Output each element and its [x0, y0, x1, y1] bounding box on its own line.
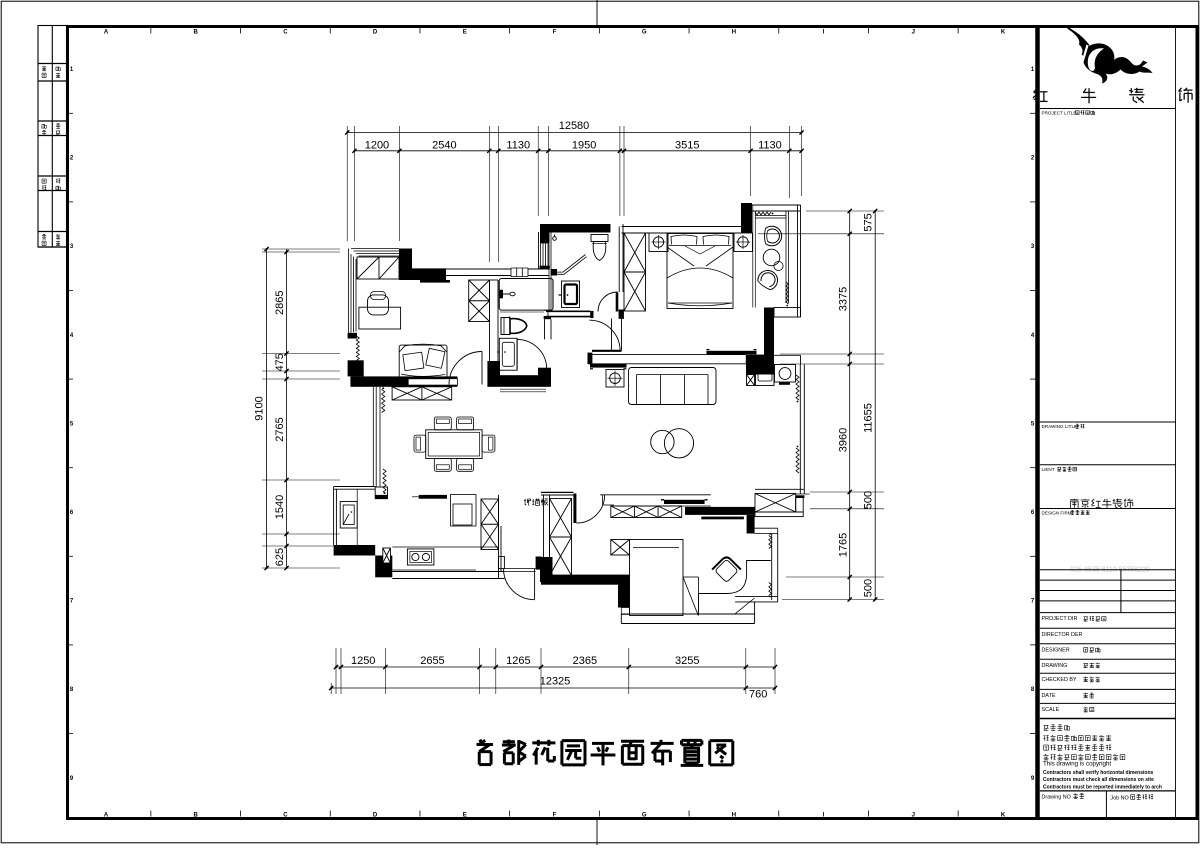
- svg-text:SCALE: SCALE: [1042, 707, 1060, 713]
- svg-text:1265: 1265: [506, 655, 530, 667]
- svg-text:1950: 1950: [572, 140, 596, 152]
- svg-text:Job NO: Job NO: [1110, 795, 1128, 801]
- svg-text:3515: 3515: [675, 140, 699, 152]
- svg-text:1130: 1130: [758, 140, 782, 152]
- svg-text:B: B: [194, 813, 199, 819]
- svg-text:1540: 1540: [274, 495, 286, 519]
- svg-text:2540: 2540: [432, 140, 456, 152]
- svg-text:K: K: [1001, 30, 1006, 36]
- svg-text:A: A: [104, 813, 109, 819]
- svg-text:DIRECTOR DER: DIRECTOR DER: [1042, 632, 1083, 638]
- svg-text:G: G: [642, 30, 647, 36]
- svg-text:H: H: [732, 813, 736, 819]
- svg-text:DESIGN FIRM: DESIGN FIRM: [1042, 511, 1072, 516]
- svg-text:2365: 2365: [573, 655, 597, 667]
- svg-text:K: K: [1001, 813, 1006, 819]
- svg-text:3960: 3960: [838, 428, 850, 452]
- svg-text:760: 760: [749, 689, 767, 701]
- svg-text:2865: 2865: [274, 291, 286, 315]
- svg-text:This drawing is copyright: This drawing is copyright: [1043, 760, 1111, 767]
- svg-text:1765: 1765: [838, 533, 850, 557]
- svg-text:PROJECT LITLE: PROJECT LITLE: [1042, 110, 1077, 115]
- svg-text:500: 500: [863, 491, 875, 509]
- svg-text:1130: 1130: [506, 140, 530, 152]
- svg-text:Contractors must be reported i: Contractors must be reported immediately…: [1043, 784, 1162, 790]
- svg-text:500: 500: [863, 579, 875, 597]
- svg-text:LIENT: LIENT: [1042, 467, 1055, 472]
- svg-text:2765: 2765: [274, 417, 286, 441]
- svg-text:CHECKED BY: CHECKED BY: [1042, 677, 1077, 683]
- svg-text:DATE: DATE: [1042, 693, 1056, 699]
- svg-text:C: C: [283, 30, 288, 36]
- svg-text:2655: 2655: [420, 655, 444, 667]
- svg-text:Contractors shall verify horiz: Contractors shall verify horizontal dime…: [1043, 770, 1154, 776]
- svg-text:3255: 3255: [675, 655, 699, 667]
- svg-text:D: D: [373, 30, 378, 36]
- svg-text:9100: 9100: [254, 396, 266, 420]
- svg-text:B: B: [194, 30, 199, 36]
- svg-text:11655: 11655: [863, 403, 875, 433]
- svg-text:1250: 1250: [351, 655, 375, 667]
- svg-text:G: G: [642, 813, 647, 819]
- svg-text:H: H: [732, 30, 736, 36]
- svg-text:12580: 12580: [559, 120, 590, 132]
- svg-text:575: 575: [863, 213, 875, 231]
- svg-text:3375: 3375: [838, 287, 850, 311]
- svg-text:DRAWING LITLE: DRAWING LITLE: [1042, 424, 1078, 429]
- svg-text:1200: 1200: [365, 140, 389, 152]
- svg-text:E: E: [463, 813, 467, 819]
- svg-text:PROJECT DIR: PROJECT DIR: [1042, 616, 1078, 622]
- svg-text:F: F: [553, 813, 557, 819]
- svg-text:D: D: [373, 813, 378, 819]
- svg-text:C: C: [283, 813, 288, 819]
- svg-text:J: J: [912, 30, 915, 36]
- svg-text:Drawing NO: Drawing NO: [1042, 794, 1071, 800]
- svg-text:F: F: [553, 30, 557, 36]
- svg-text:625: 625: [274, 548, 286, 566]
- svg-text:J: J: [912, 813, 915, 819]
- svg-text:475: 475: [274, 353, 286, 371]
- svg-text:DRAWING: DRAWING: [1042, 663, 1068, 669]
- svg-text:Contractors must check all dim: Contractors must check all dimensions on…: [1043, 777, 1154, 783]
- svg-text:DESIGNER: DESIGNER: [1042, 647, 1070, 653]
- svg-text:E: E: [463, 30, 467, 36]
- svg-text:12325: 12325: [540, 676, 571, 688]
- svg-text:A: A: [104, 30, 109, 36]
